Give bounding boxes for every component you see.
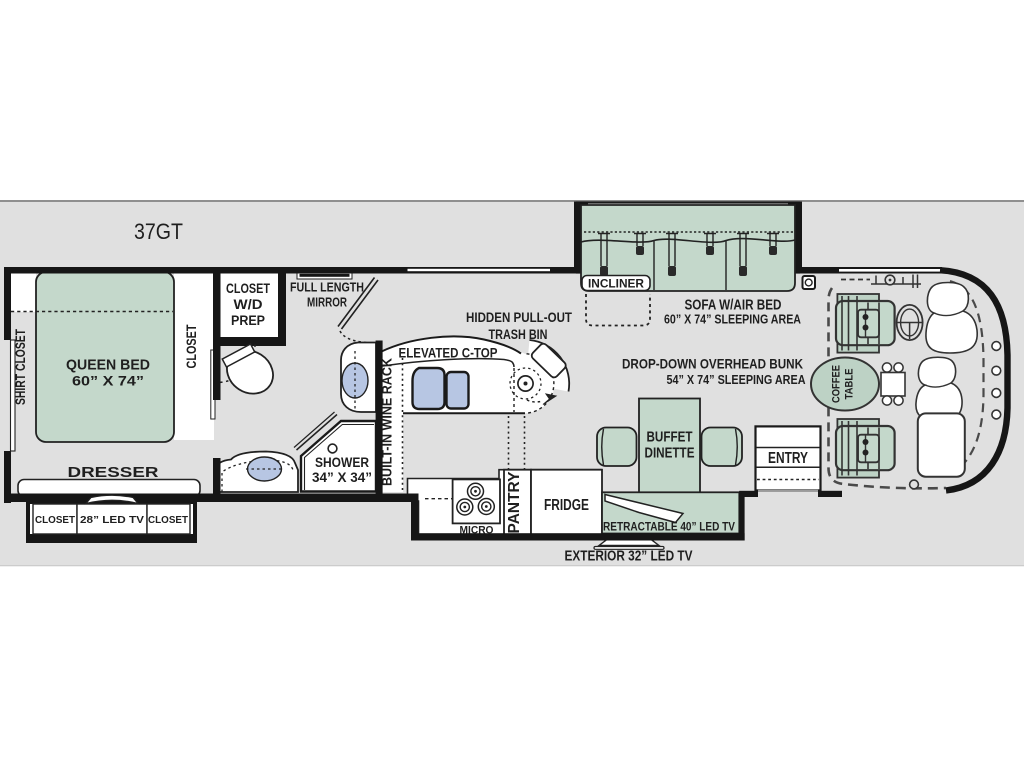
svg-text:34” X 34”: 34” X 34” — [312, 470, 372, 485]
svg-text:CLOSET: CLOSET — [226, 281, 271, 296]
svg-text:W/D: W/D — [234, 297, 263, 312]
svg-text:FULL LENGTH: FULL LENGTH — [290, 280, 364, 295]
svg-text:COFFEE: COFFEE — [831, 365, 843, 403]
svg-text:MIRROR: MIRROR — [307, 295, 347, 310]
svg-text:28” LED TV: 28” LED TV — [80, 514, 144, 526]
svg-text:60” X 74”: 60” X 74” — [72, 374, 144, 389]
svg-text:TABLE: TABLE — [844, 369, 856, 400]
svg-text:CLOSET: CLOSET — [184, 324, 199, 369]
svg-text:QUEEN BED: QUEEN BED — [66, 357, 150, 374]
svg-text:FRIDGE: FRIDGE — [544, 497, 589, 514]
svg-text:PREP: PREP — [231, 313, 265, 328]
svg-text:37GT: 37GT — [134, 219, 183, 244]
svg-text:54” X 74” SLEEPING AREA: 54” X 74” SLEEPING AREA — [667, 373, 806, 387]
svg-text:SHOWER: SHOWER — [315, 455, 369, 470]
svg-text:TRASH BIN: TRASH BIN — [489, 327, 548, 342]
svg-text:CLOSET: CLOSET — [148, 514, 189, 526]
svg-text:DINETTE: DINETTE — [645, 445, 695, 462]
svg-text:ELEVATED C-TOP: ELEVATED C-TOP — [399, 346, 498, 361]
svg-text:RETRACTABLE 40” LED TV: RETRACTABLE 40” LED TV — [603, 522, 735, 534]
svg-text:EXTERIOR 32” LED TV: EXTERIOR 32” LED TV — [565, 549, 693, 565]
svg-text:CLOSET: CLOSET — [35, 514, 76, 526]
svg-text:HIDDEN PULL-OUT: HIDDEN PULL-OUT — [466, 310, 573, 325]
svg-text:PANTRY: PANTRY — [506, 471, 523, 534]
svg-text:DROP-DOWN OVERHEAD BUNK: DROP-DOWN OVERHEAD BUNK — [622, 356, 803, 372]
svg-text:SOFA W/AIR BED: SOFA W/AIR BED — [685, 298, 782, 314]
svg-text:ENTRY: ENTRY — [768, 450, 809, 467]
svg-text:INCLINER: INCLINER — [588, 279, 645, 291]
svg-text:DRESSER: DRESSER — [68, 464, 159, 481]
svg-text:60” X 74” SLEEPING AREA: 60” X 74” SLEEPING AREA — [664, 313, 801, 327]
svg-text:BUFFET: BUFFET — [647, 429, 693, 446]
